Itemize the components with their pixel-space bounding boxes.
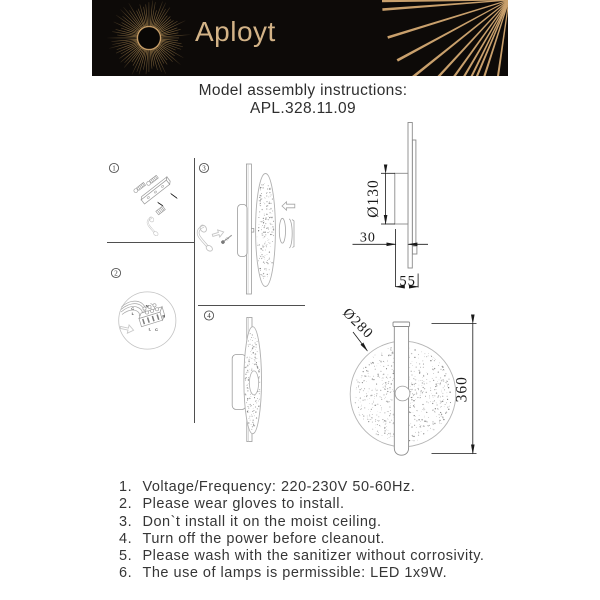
svg-text:C: C [155,327,158,332]
svg-text:Ø280: Ø280 [339,305,376,342]
svg-text:360: 360 [453,376,470,402]
svg-text:2: 2 [114,270,118,278]
svg-text:3: 3 [202,165,206,173]
svg-text:4: 4 [207,312,211,320]
svg-text:N: N [162,313,165,318]
svg-text:55: 55 [399,273,416,289]
svg-text:N: N [146,303,149,308]
svg-text:30: 30 [360,230,376,245]
svg-text:Ø130: Ø130 [365,179,382,217]
svg-text:1: 1 [112,165,116,173]
